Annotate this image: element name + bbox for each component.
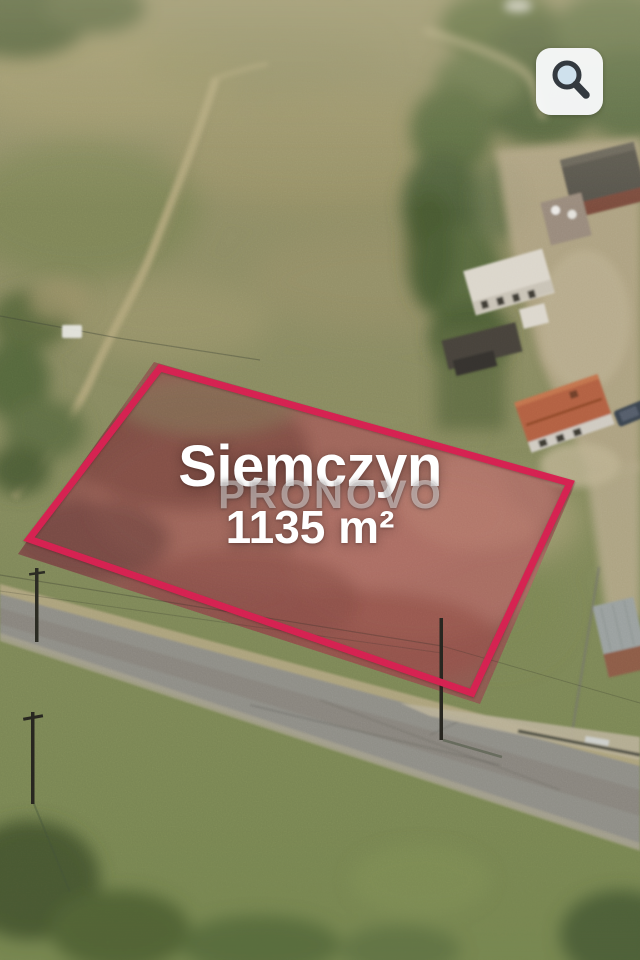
aerial-photo <box>0 0 640 960</box>
listing-photo-screen: Siemczyn 1135 m² PRONOVO <box>0 0 640 960</box>
zoom-button[interactable] <box>536 48 603 115</box>
photo-grain <box>0 0 640 960</box>
magnifier-icon <box>536 48 603 115</box>
